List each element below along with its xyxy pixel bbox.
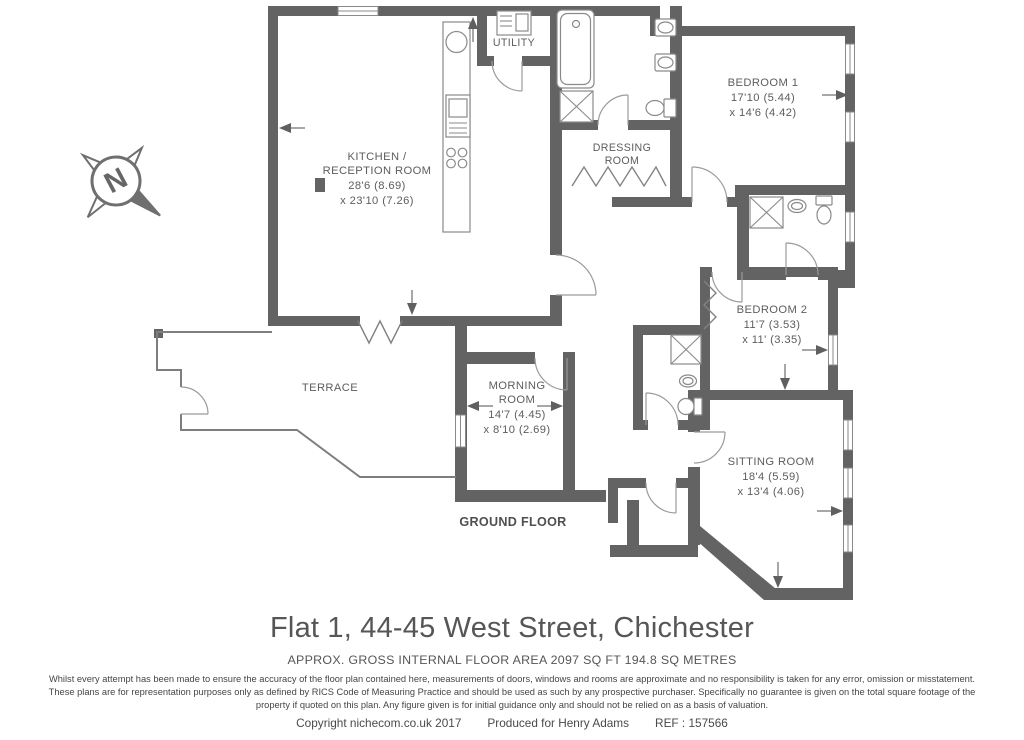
morning-name-2: ROOM <box>499 394 535 406</box>
room-label-bedroom1: BEDROOM 1 17'10 (5.44) x 14'6 (4.42) <box>728 77 799 119</box>
kitchen-dim-1: 28'6 (8.69) <box>348 180 406 192</box>
room-label-utility: UTILITY <box>493 37 535 49</box>
utility-sink <box>497 11 531 35</box>
room-label-sitting: SITTING ROOM 18'4 (5.59) x 13'4 (4.06) <box>728 456 815 498</box>
disclaimer-line-3: property if quoted on this plan. Any fig… <box>0 700 1024 710</box>
kitchen-fixtures <box>443 22 470 232</box>
compass-north-icon: N <box>55 122 186 252</box>
ground-floor-label: GROUND FLOOR <box>459 515 566 529</box>
produced-for-text: Produced for Henry Adams <box>487 716 629 730</box>
bedroom1-name: BEDROOM 1 <box>728 77 799 89</box>
kitchen-name-1: KITCHEN / <box>348 151 407 163</box>
disclaimer-line-1: Whilst every attempt has been made to en… <box>0 674 1024 684</box>
reference-number: REF : 157566 <box>655 716 728 730</box>
morning-dim-1: 14'7 (4.45) <box>488 409 546 421</box>
disclaimer-line-2: These plans are for representation purpo… <box>0 687 1024 697</box>
room-label-morning: MORNING ROOM 14'7 (4.45) x 8'10 (2.69) <box>483 380 550 436</box>
terrace-outline <box>157 332 456 477</box>
utility-name: UTILITY <box>493 37 535 49</box>
dressing-name-2: ROOM <box>605 155 640 167</box>
bedroom2-dim-1: 11'7 (3.53) <box>744 319 801 331</box>
floorplan-drawing: N KITCHEN / RECEPTION ROOM 28'6 (8.69) x… <box>0 0 1024 612</box>
bathroom-fixtures <box>557 10 676 122</box>
room-label-kitchen: KITCHEN / RECEPTION ROOM 28'6 (8.69) x 2… <box>323 151 432 207</box>
page-title: Flat 1, 44-45 West Street, Chichester <box>0 612 1024 645</box>
room-label-dressing: DRESSING ROOM <box>593 142 652 167</box>
kitchen-name-2: RECEPTION ROOM <box>323 165 432 177</box>
floor-area-line: APPROX. GROSS INTERNAL FLOOR AREA 2097 S… <box>0 653 1024 667</box>
floorplan-page: { "plan": { "compass": { "letter": "N" }… <box>0 0 1024 740</box>
morning-name-1: MORNING <box>489 380 546 392</box>
kitchen-dim-2: x 23'10 (7.26) <box>340 195 414 207</box>
shower-room-fixtures <box>671 335 702 415</box>
bedroom2-dim-2: x 11' (3.35) <box>742 334 802 346</box>
sitting-dim-1: 18'4 (5.59) <box>742 471 800 483</box>
bedroom1-dim-2: x 14'6 (4.42) <box>729 107 796 119</box>
room-label-terrace: TERRACE <box>302 382 358 394</box>
copyright-text: Copyright nichecom.co.uk 2017 <box>296 716 461 730</box>
dressing-name-1: DRESSING <box>593 142 652 154</box>
sitting-name: SITTING ROOM <box>728 456 815 468</box>
ensuite-fixtures <box>750 196 832 228</box>
sitting-dim-2: x 13'4 (4.06) <box>737 486 804 498</box>
terrace-name: TERRACE <box>302 382 358 394</box>
bedroom2-name: BEDROOM 2 <box>737 304 808 316</box>
copyright-row: Copyright nichecom.co.uk 2017 Produced f… <box>0 716 1024 730</box>
room-label-bedroom2: BEDROOM 2 11'7 (3.53) x 11' (3.35) <box>737 304 808 346</box>
bedroom1-dim-1: 17'10 (5.44) <box>731 92 795 104</box>
morning-dim-2: x 8'10 (2.69) <box>483 424 550 436</box>
